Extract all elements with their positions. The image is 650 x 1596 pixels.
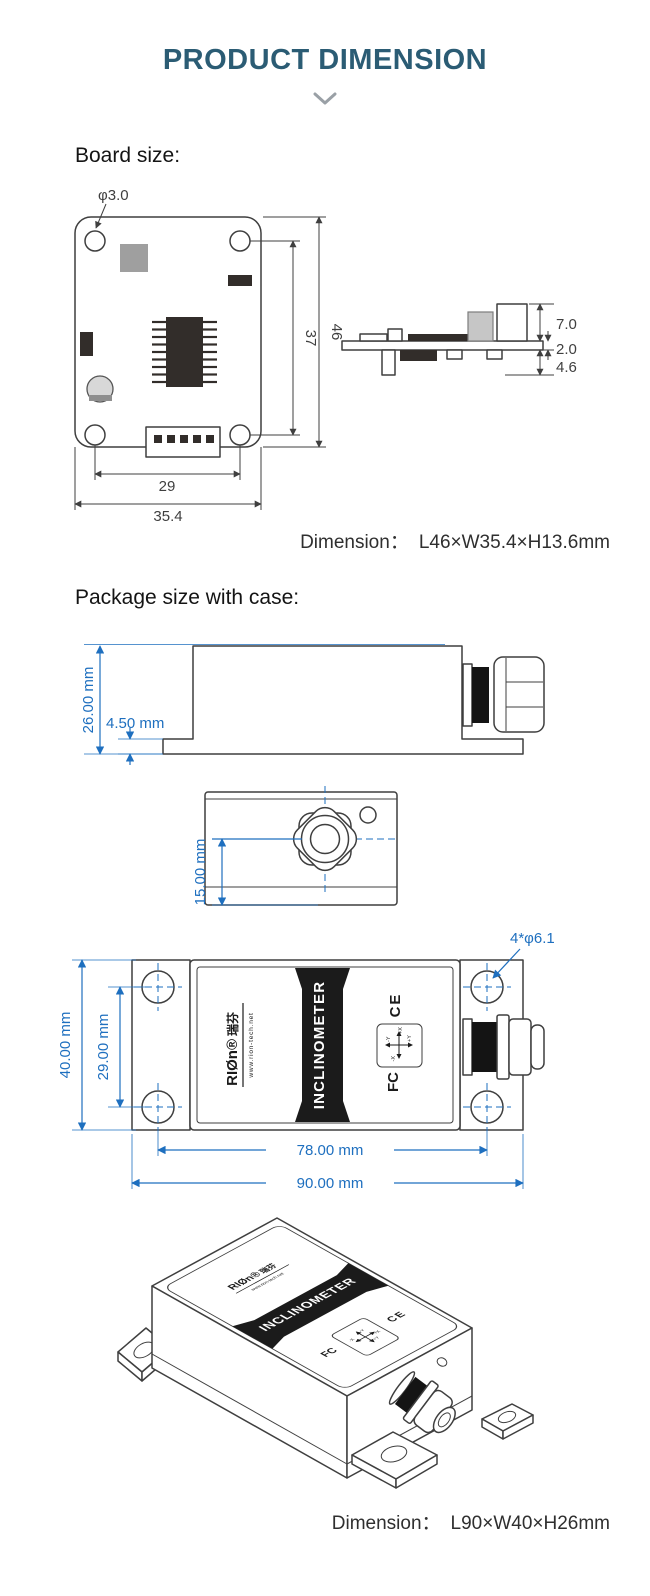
axis-label-0: +X (398, 1027, 404, 1034)
axis-label-3: +Y (407, 1035, 413, 1042)
dim-case-width: 40.00 mm (57, 1012, 74, 1079)
case-side-view: 26.00 mm 4.50 mm (0, 622, 650, 772)
package-dimension-summary: Dimension：L90×W40×H26mm (0, 1508, 650, 1535)
case-body-3d (152, 1218, 472, 1478)
brand-cn-text: 瑞芬 (225, 1011, 240, 1036)
dim-pcb-inner-height: 37 (302, 330, 319, 347)
product-name: INCLINOMETER (311, 981, 328, 1110)
board-drawing: φ3.0 37 46 29 35.4 7.0 (0, 182, 650, 527)
pcb-top-view (75, 217, 261, 457)
capacitor (87, 376, 113, 402)
case-top-view: RIØn® 瑞芬 www.rion-tech.net INCLINOMETER … (0, 927, 650, 1202)
fcc-mark: FC (385, 1072, 402, 1092)
dim-board-thickness: 2.0 (556, 341, 577, 358)
chevron-down-icon[interactable] (312, 92, 338, 106)
flange-right-3d (482, 1404, 533, 1439)
board-size-heading: Board size: (0, 144, 650, 168)
left-flange (132, 960, 190, 1130)
summary-value: L46×W35.4×H13.6mm (419, 532, 610, 553)
case-front-view: 15.00 mm (0, 772, 650, 927)
pin-connector (146, 427, 220, 457)
dim-pcb-height: 46 (328, 324, 345, 341)
package-size-heading: Package size with case: (0, 586, 650, 610)
dim-case-height: 26.00 mm (80, 667, 97, 734)
cable-gland-top (463, 1015, 544, 1079)
summary-label: Dimension： (332, 1513, 441, 1534)
dim-case-length: 90.00 mm (297, 1175, 364, 1192)
dim-connector-width: 29 (159, 478, 176, 495)
summary-label: Dimension： (300, 532, 409, 553)
dim-mounting-holes: 4*φ6.1 (510, 930, 555, 947)
board-dimension-summary: Dimension：L46×W35.4×H13.6mm (0, 527, 650, 554)
dim-hole-spacing-width: 29.00 mm (95, 1014, 112, 1081)
pcb-side-view: 7.0 2.0 4.6 (342, 304, 577, 376)
sensor-chip (120, 244, 148, 272)
dim-base-thickness: 4.50 mm (106, 715, 164, 732)
dim-gland-center-height: 15.00 mm (192, 839, 209, 906)
brand-text: RIØn® (224, 1039, 241, 1086)
case-3d-view: INCLINOMETER RIØn® 瑞芬 www.rion-tech.net … (0, 1202, 650, 1500)
axis-label-2: -X (391, 1056, 397, 1062)
summary-value: L90×W40×H26mm (451, 1513, 610, 1534)
dim-component-height-bottom: 4.6 (556, 359, 577, 376)
axis-label-1: -Y (386, 1036, 392, 1042)
brand-logo: RIØn® 瑞芬 www.rion-tech.net (224, 1003, 255, 1087)
dim-pcb-width: 35.4 (153, 508, 182, 525)
dim-component-height-top: 7.0 (556, 316, 577, 333)
page-title: PRODUCT DIMENSION (0, 0, 650, 77)
cable-gland-side (463, 657, 544, 732)
ce-mark: CE (387, 993, 404, 1018)
dim-hole-diameter: φ3.0 (98, 187, 129, 204)
brand-website: www.rion-tech.net (248, 1012, 255, 1078)
dim-hole-spacing-length: 78.00 mm (297, 1142, 364, 1159)
